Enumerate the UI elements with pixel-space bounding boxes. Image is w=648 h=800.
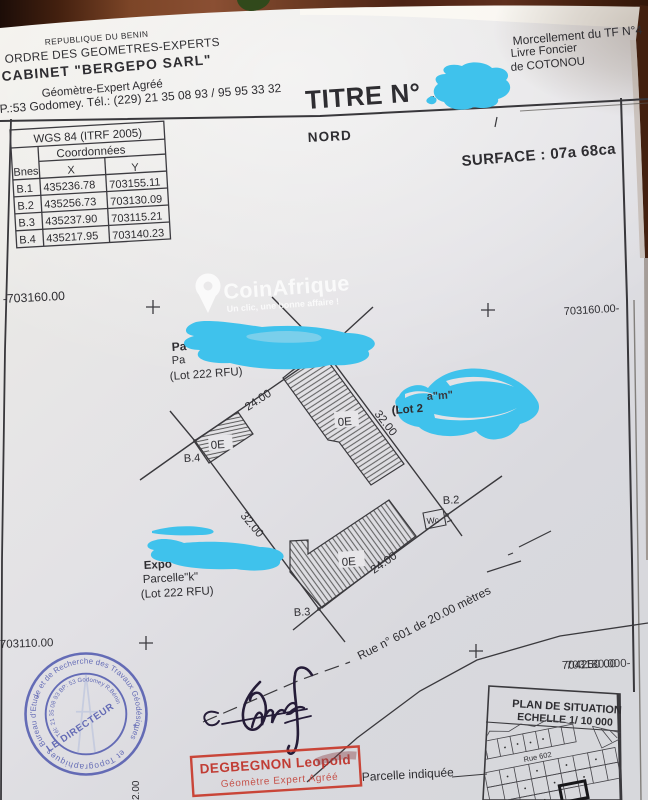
svg-text:B.4: B.4 — [19, 234, 36, 247]
svg-text:(Lot 2: (Lot 2 — [391, 403, 423, 417]
svg-text:B.3: B.3 — [18, 217, 35, 230]
svg-text:a"m": a"m" — [426, 389, 453, 403]
svg-text:Pa: Pa — [171, 354, 186, 367]
svg-text:703110.00: 703110.00 — [0, 637, 54, 651]
svg-text:B.3: B.3 — [294, 606, 311, 619]
svg-text:*: * — [36, 694, 40, 705]
svg-text:B.2: B.2 — [443, 494, 460, 507]
svg-text:B.4: B.4 — [184, 452, 201, 465]
svg-text:Y: Y — [131, 162, 140, 174]
svg-text:X: X — [67, 164, 76, 176]
svg-text:Bnes: Bnes — [13, 165, 39, 178]
svg-text:2.00: 2.00 — [131, 780, 142, 800]
svg-text:Wc: Wc — [426, 515, 440, 526]
svg-text:*: * — [133, 723, 137, 734]
svg-text:NORD: NORD — [307, 128, 352, 145]
svg-text:B.2: B.2 — [17, 200, 34, 213]
svg-text:703180.000-: 703180.000- — [566, 658, 631, 672]
svg-text:0E: 0E — [337, 416, 352, 429]
svg-text:0E: 0E — [210, 439, 225, 452]
svg-text:0E: 0E — [341, 556, 356, 569]
svg-text:B.1: B.1 — [16, 183, 33, 196]
